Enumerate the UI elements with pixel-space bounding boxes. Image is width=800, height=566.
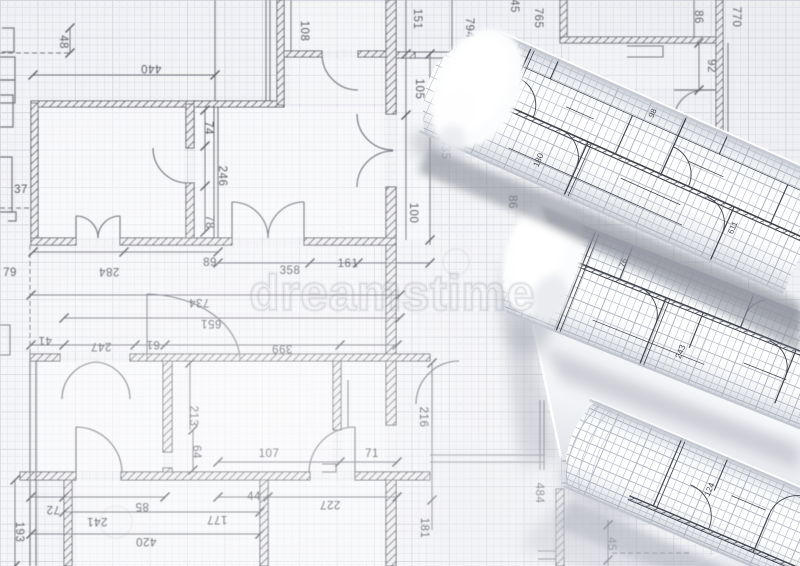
svg-text:dreamstime: dreamstime — [249, 265, 535, 321]
